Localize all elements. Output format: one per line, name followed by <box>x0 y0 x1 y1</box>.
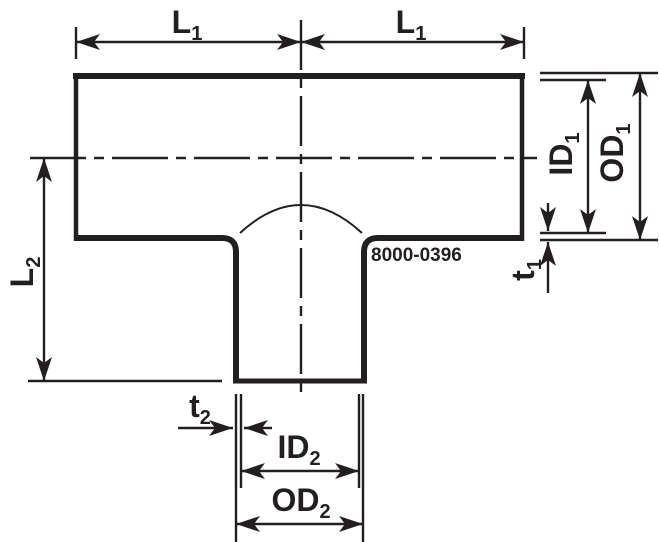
part-number: 8000-0396 <box>371 245 462 266</box>
t1-label: t1 <box>505 259 546 281</box>
tee-body-outline <box>73 73 525 381</box>
t2-label: t2 <box>189 388 211 429</box>
bottom-left-contour-and-branch-left-wall <box>74 238 236 379</box>
technical-drawing-canvas: L1 L1 ID1 OD1 t1 <box>0 0 659 542</box>
dimension-t2-ID2-OD2: t2 ID2 OD2 <box>178 388 363 542</box>
dimension-L2: L2 <box>4 158 222 381</box>
OD2-label: OD2 <box>271 482 330 523</box>
OD1-label: OD1 <box>594 123 635 182</box>
L1-left-label: L1 <box>172 4 203 45</box>
dimension-L1-left: L1 <box>76 4 301 59</box>
technical-drawing-page: L1 L1 ID1 OD1 t1 <box>0 0 659 542</box>
dimension-L1-right: L1 <box>301 4 524 59</box>
L2-label: L2 <box>4 257 45 288</box>
dimension-ID1-OD1-t1: ID1 OD1 t1 <box>505 73 658 293</box>
ID1-label: ID1 <box>543 132 584 175</box>
L1-right-label: L1 <box>396 4 427 45</box>
ID2-label: ID2 <box>277 429 320 470</box>
